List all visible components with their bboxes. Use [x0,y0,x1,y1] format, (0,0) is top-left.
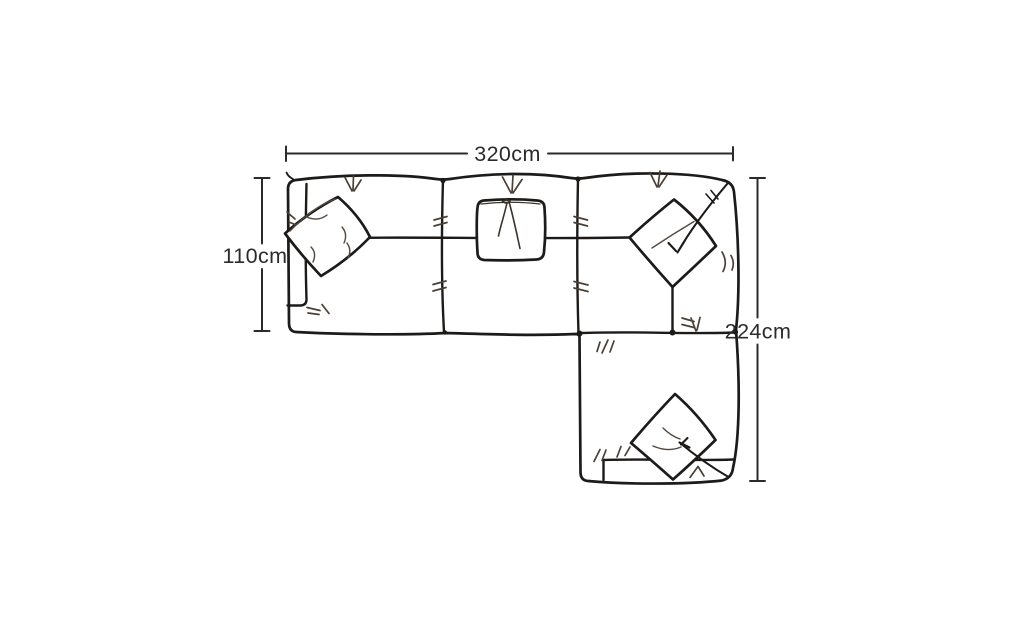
pillow-left-diamond [285,197,370,276]
dimension-width-top: 320cm [286,142,733,166]
dimension-width-label: 320cm [474,142,541,166]
pillow-chaise-diamond [631,394,716,480]
diagram-canvas: 320cm 110cm 224cm [0,0,1024,640]
seam-left-middle [442,180,444,332]
corner-diagonal-ticks [706,191,718,204]
seam-middle-corner [577,179,578,333]
dimension-depth-left: 110cm [223,178,288,331]
dimension-length-label: 224cm [725,320,792,344]
sofa-illustration [285,171,739,484]
pillows [285,197,716,480]
sofa-dimension-diagram: 320cm 110cm 224cm [0,0,1024,640]
dimension-length-right: 224cm [725,178,792,481]
dimension-depth-label: 110cm [223,244,288,268]
corner-overshoot-flick [287,173,294,180]
seam-corner-chaise [581,332,734,333]
pillow-middle-square [477,199,545,260]
